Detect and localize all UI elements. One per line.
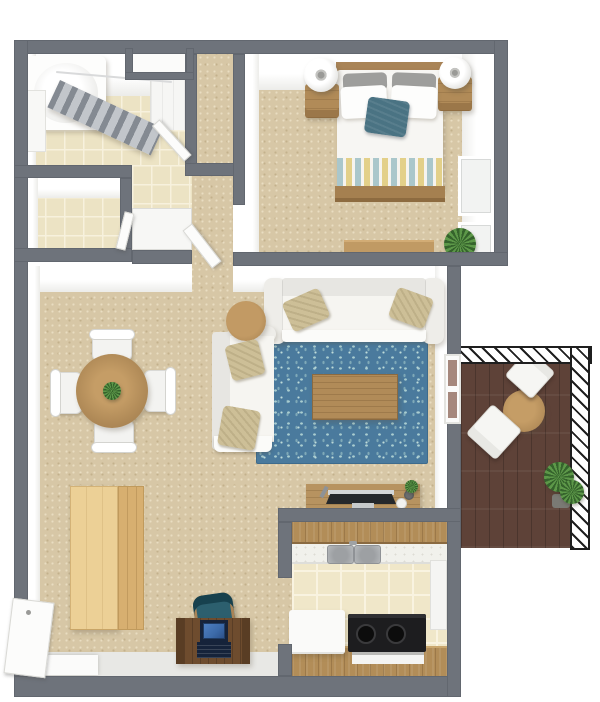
tall-white-cabinet [430,560,447,630]
floor-plan-canvas [0,0,600,702]
round-side-table [226,301,266,341]
tv-mini-plant [405,480,418,493]
bedroom-window-upper [458,156,494,216]
kitchen-faucet [349,541,357,545]
wall-bottom [14,676,461,697]
storage-wall-face [26,178,120,198]
closet-nook-floor [132,165,192,208]
burner-left [356,624,376,644]
teal-accent-pillow [364,96,411,137]
bedroom-left-face [245,54,259,252]
laptop-keyboard [197,642,231,658]
dining-chair-right-back [165,367,176,415]
hallway-carpet-upper [197,54,233,163]
wardrobe-cabinet-side [118,486,144,630]
sofa-side-pillow-bottom [217,405,261,451]
sofa-front-long [282,330,426,342]
oven-front [352,652,424,664]
coffee-table [312,374,398,420]
wall-closet-bottom [132,250,192,264]
balcony-deck [461,360,572,548]
wall-kitchen-left-upper [278,522,292,578]
laptop-screen-glow [204,624,224,638]
striped-throw-blanket [337,158,443,186]
kitchen-upper-cabinets [292,522,447,544]
table-lamp-right [439,57,471,89]
dining-centerpiece-plant [103,382,121,400]
balcony-plant-b [560,480,584,504]
linen-closet-interior [133,54,186,72]
kitchen-sink-right [354,545,381,564]
dining-chair-left-back [50,369,61,417]
wardrobe-cabinet-front [70,486,118,630]
wall-bedroom-left [233,54,245,205]
wall-storage-bottom [14,248,132,262]
front-door-handle [26,610,31,615]
kitchen-sink-left [327,545,354,564]
dishwasher [289,610,345,654]
dining-chair-bottom-back [91,442,137,453]
wall-right-main [447,266,461,697]
burner-right [386,624,406,644]
dining-chair-top-back [89,329,135,340]
wall-bedroom-right [494,40,508,266]
living-left-face [28,266,40,652]
wall-kitchen-top [278,508,461,522]
table-lamp-left [304,58,338,92]
wall-top [14,40,508,54]
wall-bedroom-bottom [233,252,508,266]
wall-niche-bottom [125,72,194,80]
wall-kitchen-left-lower [278,644,292,676]
balcony-door-glass-upper [448,360,457,386]
living-wall-face-left [28,266,192,292]
balcony-door-glass-lower [448,392,457,418]
balcony-railing-right [570,346,590,550]
wall-bathroom-bottom [14,165,132,178]
bed-footboard [335,186,445,202]
